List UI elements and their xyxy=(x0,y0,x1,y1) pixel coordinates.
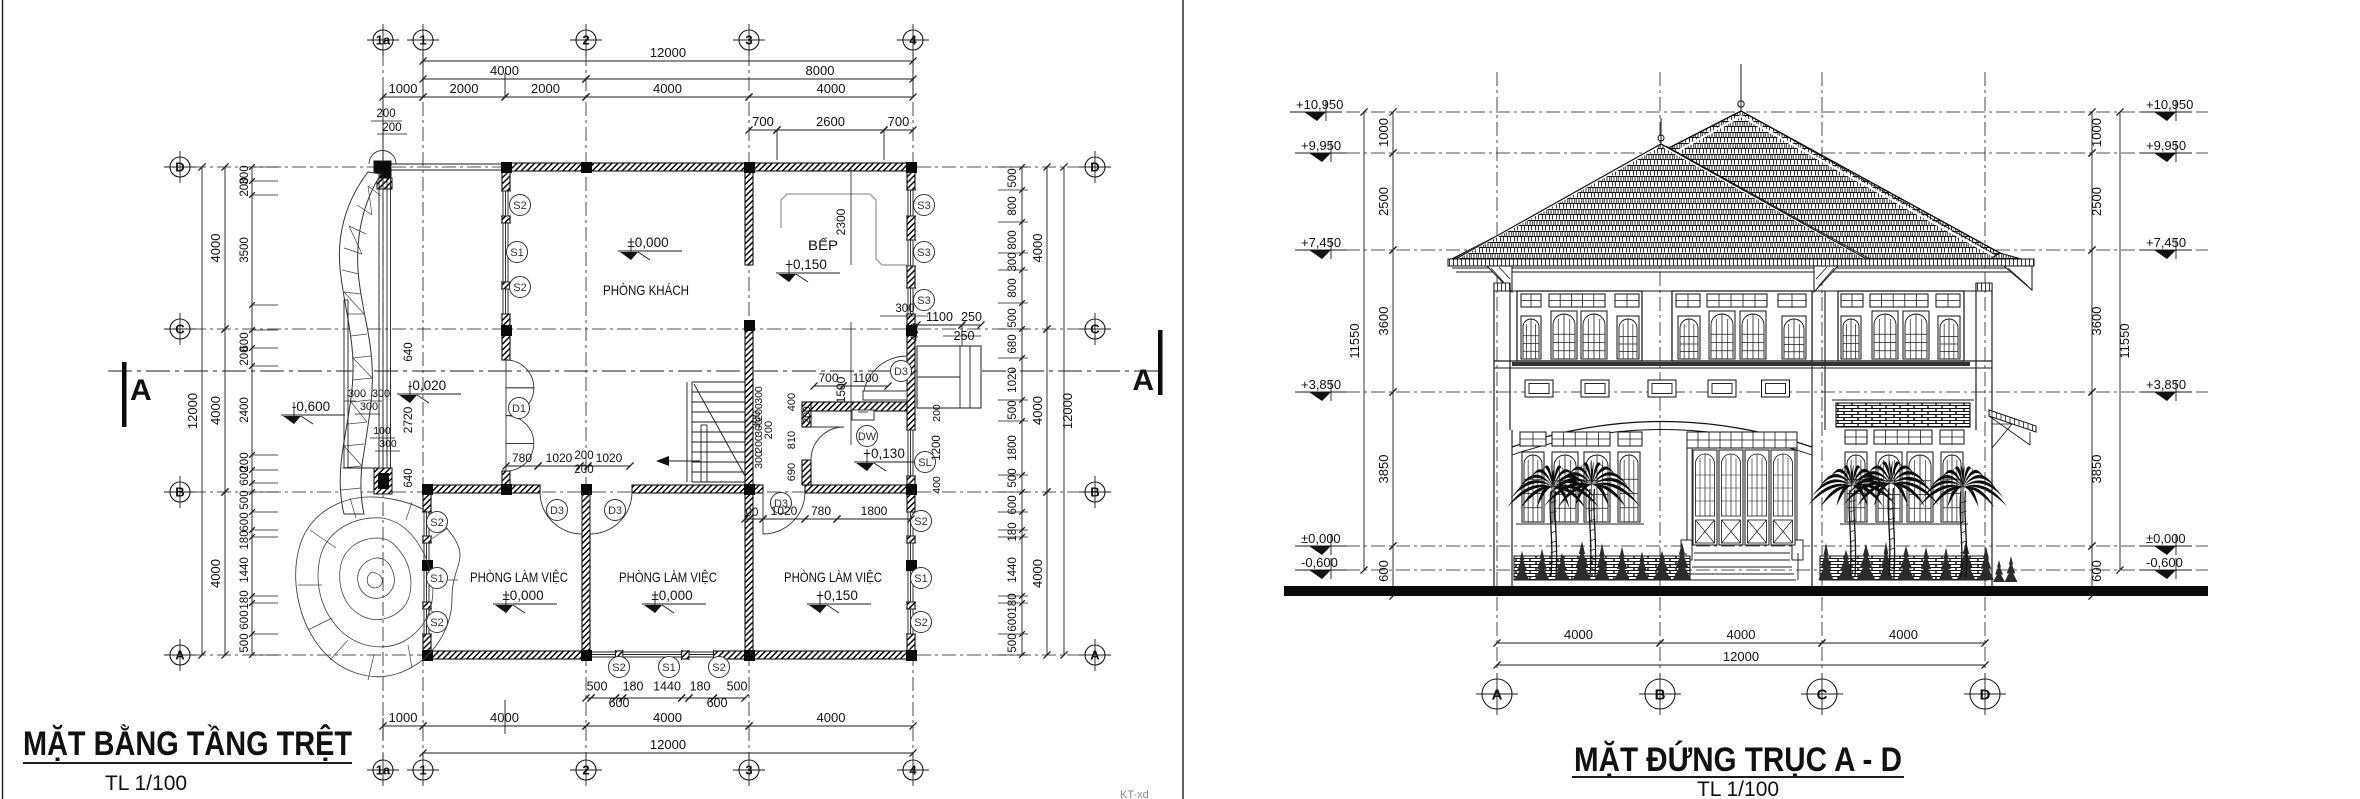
svg-text:3600: 3600 xyxy=(2089,307,2104,336)
svg-text:300: 300 xyxy=(895,303,914,315)
svg-text:+9,950: +9,950 xyxy=(2146,138,2186,153)
svg-text:200: 200 xyxy=(574,450,593,462)
svg-text:S2: S2 xyxy=(513,282,526,294)
svg-text:1000: 1000 xyxy=(389,710,418,725)
svg-text:+7,450: +7,450 xyxy=(2146,235,2186,250)
svg-text:S1: S1 xyxy=(510,247,523,259)
svg-text:4000: 4000 xyxy=(817,710,846,725)
svg-text:D: D xyxy=(175,160,184,175)
svg-text:+3,850: +3,850 xyxy=(1301,377,1341,392)
svg-text:S2: S2 xyxy=(914,617,927,629)
svg-text:8000: 8000 xyxy=(806,63,835,78)
svg-text:+10,950: +10,950 xyxy=(2146,97,2193,112)
svg-text:C: C xyxy=(1817,686,1828,703)
svg-text:500: 500 xyxy=(1007,633,1019,652)
svg-text:+0,130: +0,130 xyxy=(863,446,905,461)
svg-text:200: 200 xyxy=(239,177,251,196)
svg-text:300: 300 xyxy=(753,419,765,437)
svg-text:BẾP: BẾP xyxy=(808,237,838,253)
svg-text:300: 300 xyxy=(1007,252,1019,271)
svg-text:3: 3 xyxy=(745,763,752,778)
svg-text:600: 600 xyxy=(239,466,251,485)
svg-text:680: 680 xyxy=(1007,334,1019,353)
svg-text:2600: 2600 xyxy=(816,114,845,129)
svg-text:12000: 12000 xyxy=(1060,393,1075,429)
svg-text:780: 780 xyxy=(512,451,532,465)
svg-text:11550: 11550 xyxy=(2117,323,2132,358)
svg-text:S3: S3 xyxy=(917,200,930,212)
svg-text:+3,850: +3,850 xyxy=(2146,377,2186,392)
svg-text:PHÒNG LÀM VIỆC: PHÒNG LÀM VIỆC xyxy=(784,569,882,585)
svg-text:1440: 1440 xyxy=(653,680,681,694)
svg-text:11550: 11550 xyxy=(1347,323,1362,358)
svg-text:S2: S2 xyxy=(914,516,927,528)
svg-text:2400: 2400 xyxy=(239,397,251,423)
svg-text:200: 200 xyxy=(801,406,813,424)
svg-text:4000: 4000 xyxy=(1030,559,1045,588)
svg-text:D: D xyxy=(1980,686,1991,703)
svg-text:200: 200 xyxy=(382,122,401,134)
svg-text:1: 1 xyxy=(419,763,426,778)
svg-text:+0,150: +0,150 xyxy=(785,257,827,272)
svg-text:4000: 4000 xyxy=(208,559,223,588)
svg-text:780: 780 xyxy=(811,504,831,518)
svg-text:600: 600 xyxy=(1376,560,1391,582)
svg-text:1200: 1200 xyxy=(931,435,943,461)
svg-text:S3: S3 xyxy=(917,247,930,259)
svg-text:S2: S2 xyxy=(513,200,526,212)
svg-text:1a: 1a xyxy=(376,763,391,778)
svg-text:D1: D1 xyxy=(512,403,526,415)
svg-text:600: 600 xyxy=(239,610,251,629)
svg-text:A: A xyxy=(1492,686,1503,703)
svg-text:D3: D3 xyxy=(550,505,564,517)
svg-text:690: 690 xyxy=(786,463,798,481)
svg-text:1a: 1a xyxy=(376,33,391,48)
svg-text:4000: 4000 xyxy=(653,710,682,725)
svg-text:S3: S3 xyxy=(917,295,930,307)
svg-text:1440: 1440 xyxy=(239,557,251,583)
svg-text:400: 400 xyxy=(931,476,943,494)
svg-text:B: B xyxy=(1655,686,1666,703)
svg-text:KT-xd: KT-xd xyxy=(1120,789,1149,799)
svg-text:1: 1 xyxy=(419,33,426,48)
svg-text:1000: 1000 xyxy=(389,81,418,96)
svg-text:500: 500 xyxy=(239,490,251,509)
svg-text:4000: 4000 xyxy=(1889,627,1918,642)
svg-text:200: 200 xyxy=(574,464,593,476)
svg-text:TL 1/100: TL 1/100 xyxy=(105,772,187,795)
svg-text:4000: 4000 xyxy=(1030,234,1045,263)
svg-text:MẶT BẰNG TẦNG TRỆT: MẶT BẰNG TẦNG TRỆT xyxy=(23,725,352,763)
svg-text:600: 600 xyxy=(2089,560,2104,582)
svg-text:800: 800 xyxy=(1007,196,1019,215)
svg-text:PHÒNG KHÁCH: PHÒNG KHÁCH xyxy=(603,282,689,298)
svg-text:1020: 1020 xyxy=(1007,367,1019,393)
svg-text:1020: 1020 xyxy=(546,451,573,465)
svg-text:TL 1/100: TL 1/100 xyxy=(1697,778,1779,799)
svg-text:S2: S2 xyxy=(612,662,625,674)
svg-text:S2: S2 xyxy=(430,617,443,629)
svg-text:12000: 12000 xyxy=(1723,649,1759,664)
svg-text:2500: 2500 xyxy=(1376,187,1391,216)
svg-text:-0,600: -0,600 xyxy=(1301,555,1338,570)
svg-text:400: 400 xyxy=(909,323,921,341)
svg-text:±0,000: ±0,000 xyxy=(627,235,668,250)
svg-text:PHÒNG LÀM VIỆC: PHÒNG LÀM VIỆC xyxy=(470,569,568,585)
svg-text:D3: D3 xyxy=(608,505,622,517)
svg-text:4000: 4000 xyxy=(1030,396,1045,425)
svg-text:4000: 4000 xyxy=(1727,627,1756,642)
svg-text:300: 300 xyxy=(379,438,397,450)
svg-text:4000: 4000 xyxy=(490,710,519,725)
svg-text:A: A xyxy=(175,648,185,663)
svg-text:-0,600: -0,600 xyxy=(292,399,330,414)
svg-text:C: C xyxy=(1090,322,1100,337)
svg-text:200: 200 xyxy=(376,108,395,120)
svg-text:D: D xyxy=(1090,160,1099,175)
svg-text:4000: 4000 xyxy=(490,63,519,78)
svg-text:500: 500 xyxy=(587,680,608,694)
svg-text:-0,020: -0,020 xyxy=(408,378,446,393)
svg-text:500: 500 xyxy=(727,680,748,694)
svg-text:S1: S1 xyxy=(430,573,443,585)
svg-text:180: 180 xyxy=(690,680,711,694)
svg-text:810: 810 xyxy=(786,431,798,449)
svg-text:600: 600 xyxy=(707,696,728,710)
svg-text:600: 600 xyxy=(609,696,630,710)
svg-text:A: A xyxy=(1090,648,1100,663)
svg-text:4000: 4000 xyxy=(208,234,223,263)
svg-text:3500: 3500 xyxy=(239,237,251,263)
svg-text:PHÒNG LÀM VIỆC: PHÒNG LÀM VIỆC xyxy=(619,569,717,585)
svg-text:2: 2 xyxy=(582,763,589,778)
svg-text:2720: 2720 xyxy=(401,406,415,433)
svg-text:800: 800 xyxy=(1007,230,1019,249)
svg-text:2000: 2000 xyxy=(450,81,479,96)
svg-text:800: 800 xyxy=(1007,278,1019,297)
svg-text:MẶT ĐỨNG TRỤC A - D: MẶT ĐỨNG TRỤC A - D xyxy=(1574,741,1902,779)
svg-text:180: 180 xyxy=(239,530,251,549)
svg-text:B: B xyxy=(1090,485,1099,500)
svg-text:12000: 12000 xyxy=(650,45,686,60)
svg-text:12000: 12000 xyxy=(185,393,200,429)
svg-text:500: 500 xyxy=(1007,308,1019,327)
svg-text:12000: 12000 xyxy=(650,737,686,752)
svg-text:600: 600 xyxy=(239,512,251,531)
svg-text:S2: S2 xyxy=(712,662,725,674)
svg-text:600: 600 xyxy=(1007,612,1019,631)
svg-text:200: 200 xyxy=(239,346,251,365)
svg-text:±0,000: ±0,000 xyxy=(2146,531,2186,546)
svg-text:D3: D3 xyxy=(894,366,908,378)
svg-text:DW: DW xyxy=(858,431,877,443)
svg-text:2300: 2300 xyxy=(834,208,848,235)
svg-text:±0,000: ±0,000 xyxy=(1301,531,1341,546)
svg-text:+0,150: +0,150 xyxy=(816,588,858,603)
svg-text:SL: SL xyxy=(918,457,931,469)
svg-text:3600: 3600 xyxy=(1376,307,1391,336)
svg-text:+9,950: +9,950 xyxy=(1301,138,1341,153)
svg-text:500: 500 xyxy=(1007,468,1019,487)
svg-text:1100: 1100 xyxy=(926,310,953,324)
svg-text:S2: S2 xyxy=(430,517,443,529)
svg-text:A: A xyxy=(1132,364,1154,397)
svg-text:+7,450: +7,450 xyxy=(1301,235,1341,250)
svg-text:500: 500 xyxy=(1007,168,1019,187)
svg-text:+10,950: +10,950 xyxy=(1296,97,1343,112)
svg-text:C: C xyxy=(175,322,185,337)
svg-text:1020: 1020 xyxy=(771,504,798,518)
svg-text:2: 2 xyxy=(582,33,589,48)
svg-text:4000: 4000 xyxy=(208,396,223,425)
svg-text:700: 700 xyxy=(818,371,838,385)
svg-text:1800: 1800 xyxy=(861,504,888,518)
svg-text:300: 300 xyxy=(753,386,765,404)
svg-text:4: 4 xyxy=(909,763,917,778)
svg-text:1100: 1100 xyxy=(853,371,879,385)
svg-text:1000: 1000 xyxy=(1376,118,1391,147)
svg-text:-0,600: -0,600 xyxy=(2146,555,2183,570)
svg-text:S1: S1 xyxy=(662,662,675,674)
svg-text:300: 300 xyxy=(360,401,378,413)
svg-text:4000: 4000 xyxy=(817,81,846,96)
svg-text:1800: 1800 xyxy=(1007,435,1019,461)
svg-text:1440: 1440 xyxy=(1007,557,1019,583)
svg-text:640: 640 xyxy=(403,468,415,487)
svg-text:4: 4 xyxy=(909,33,917,48)
svg-text:180: 180 xyxy=(1007,522,1019,541)
svg-text:3: 3 xyxy=(745,33,752,48)
svg-text:B: B xyxy=(175,485,184,500)
svg-text:00: 00 xyxy=(746,507,759,519)
svg-text:±0,000: ±0,000 xyxy=(502,588,543,603)
svg-text:200: 200 xyxy=(753,435,765,453)
svg-text:100: 100 xyxy=(373,425,391,437)
svg-text:300: 300 xyxy=(348,388,366,400)
svg-text:200: 200 xyxy=(753,403,765,421)
svg-text:400: 400 xyxy=(786,393,798,411)
svg-text:4000: 4000 xyxy=(653,81,682,96)
svg-text:640: 640 xyxy=(403,342,415,361)
svg-text:±0,000: ±0,000 xyxy=(651,588,692,603)
svg-text:200: 200 xyxy=(931,404,943,422)
svg-text:2500: 2500 xyxy=(2089,187,2104,216)
svg-text:300: 300 xyxy=(753,451,765,469)
svg-text:180: 180 xyxy=(239,590,251,609)
svg-text:700: 700 xyxy=(752,114,774,129)
svg-text:1020: 1020 xyxy=(596,451,623,465)
svg-text:1000: 1000 xyxy=(2089,118,2104,147)
svg-text:3850: 3850 xyxy=(2089,455,2104,484)
svg-text:4000: 4000 xyxy=(1564,627,1593,642)
svg-text:180: 180 xyxy=(623,680,644,694)
svg-text:500: 500 xyxy=(1007,400,1019,419)
svg-text:250: 250 xyxy=(961,310,982,324)
svg-text:700: 700 xyxy=(888,114,910,129)
svg-text:300: 300 xyxy=(372,388,390,400)
svg-text:A: A xyxy=(130,374,152,407)
svg-text:3850: 3850 xyxy=(1376,455,1391,484)
svg-text:S1: S1 xyxy=(914,573,927,585)
svg-text:2000: 2000 xyxy=(531,81,560,96)
